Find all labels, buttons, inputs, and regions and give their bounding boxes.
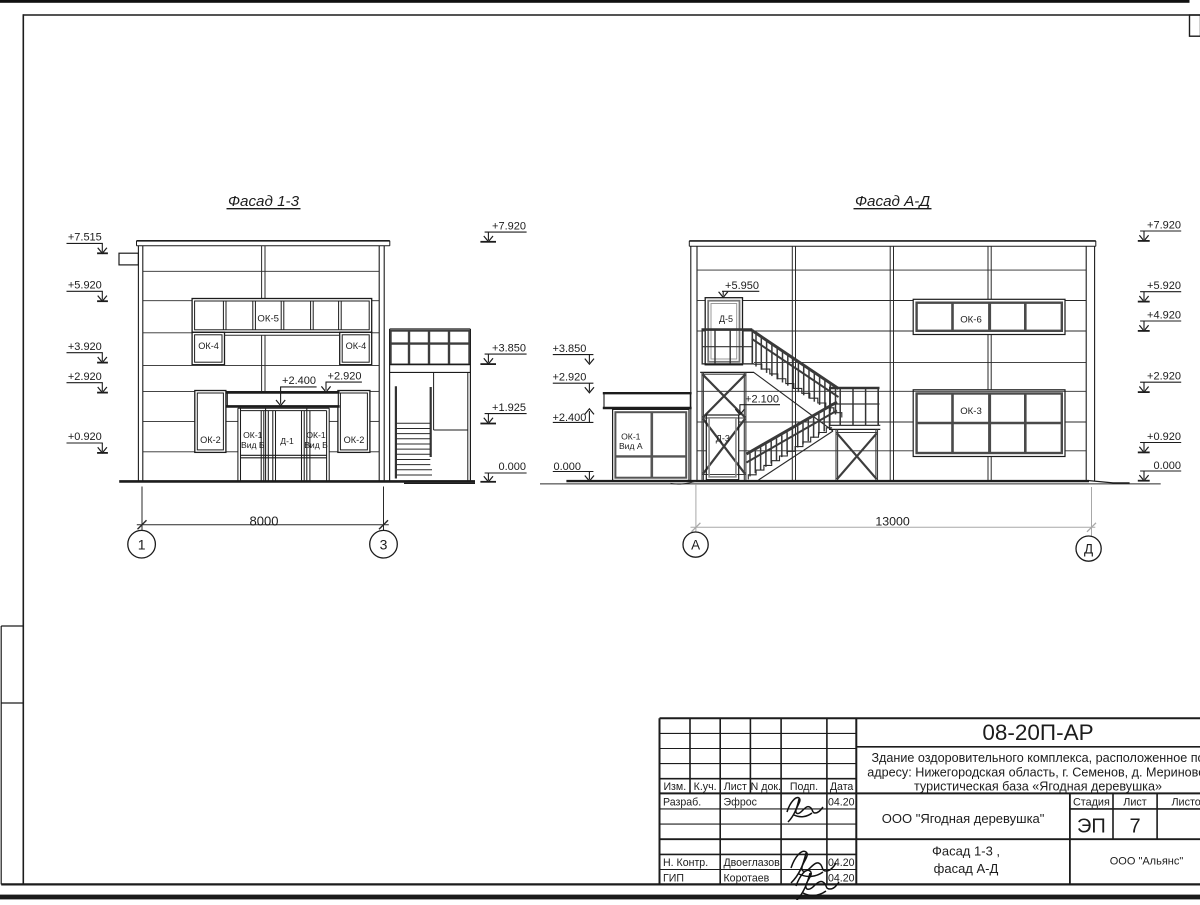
svg-text:Вид А: Вид А bbox=[619, 441, 643, 451]
svg-text:+3.850: +3.850 bbox=[552, 343, 586, 355]
svg-text:Лист: Лист bbox=[1123, 796, 1147, 808]
svg-text:04.20: 04.20 bbox=[828, 797, 855, 809]
svg-text:Д-5: Д-5 bbox=[719, 314, 733, 324]
svg-text:Стадия: Стадия bbox=[1073, 796, 1110, 808]
svg-text:Разраб.: Разраб. bbox=[663, 797, 701, 809]
svg-text:3: 3 bbox=[380, 536, 388, 552]
svg-text:+0.920: +0.920 bbox=[1147, 431, 1181, 443]
svg-text:Фасад 1-3 ,: Фасад 1-3 , bbox=[932, 843, 1000, 858]
svg-text:ОК-2: ОК-2 bbox=[200, 435, 221, 445]
svg-text:ОК-1: ОК-1 bbox=[243, 430, 263, 440]
svg-text:+5.920: +5.920 bbox=[68, 280, 102, 292]
svg-text:+1.925: +1.925 bbox=[492, 402, 526, 414]
svg-text:Н. Контр.: Н. Контр. bbox=[663, 857, 708, 869]
svg-text:+5.920: +5.920 bbox=[1147, 280, 1181, 292]
svg-text:N док.: N док. bbox=[751, 781, 781, 793]
svg-text:ЭП: ЭП bbox=[1077, 816, 1106, 838]
svg-text:Фасад А-Д: Фасад А-Д bbox=[855, 193, 930, 210]
svg-text:Листов: Листов bbox=[1171, 796, 1200, 808]
svg-text:Лист: Лист bbox=[724, 781, 747, 793]
svg-text:13000: 13000 bbox=[875, 514, 910, 528]
svg-text:+5.950: +5.950 bbox=[725, 280, 759, 292]
svg-text:+3.920: +3.920 bbox=[68, 341, 102, 353]
svg-text:ООО "Ягодная деревушка": ООО "Ягодная деревушка" bbox=[882, 811, 1045, 826]
svg-text:А: А bbox=[691, 538, 700, 553]
svg-text:7: 7 bbox=[1129, 816, 1140, 838]
svg-text:ОК-1: ОК-1 bbox=[621, 431, 641, 441]
svg-text:+2.920: +2.920 bbox=[68, 371, 102, 383]
svg-text:ОК-6: ОК-6 bbox=[960, 314, 982, 325]
svg-text:Подп.: Подп. bbox=[790, 781, 818, 793]
svg-text:8000: 8000 bbox=[250, 514, 279, 529]
svg-text:Эфрос: Эфрос bbox=[724, 797, 758, 809]
svg-text:+7.920: +7.920 bbox=[1147, 219, 1181, 231]
svg-text:ОК-1: ОК-1 bbox=[306, 430, 326, 440]
svg-text:ОК-2: ОК-2 bbox=[344, 435, 365, 445]
svg-text:08-20П-АР: 08-20П-АР bbox=[982, 720, 1093, 745]
svg-text:Коротаев: Коротаев bbox=[724, 872, 770, 884]
svg-text:+7.515: +7.515 bbox=[68, 232, 102, 244]
svg-text:Д-3: Д-3 bbox=[716, 433, 730, 443]
svg-text:К.уч.: К.уч. bbox=[694, 781, 717, 793]
svg-text:ГИП: ГИП bbox=[663, 872, 684, 884]
svg-text:+0.920: +0.920 bbox=[68, 431, 102, 443]
svg-text:Фасад 1-3: Фасад 1-3 bbox=[228, 193, 300, 210]
svg-text:адресу: Нижегородская область,: адресу: Нижегородская область, г. Семено… bbox=[867, 766, 1200, 780]
svg-text:Вид Б: Вид Б bbox=[241, 440, 265, 450]
svg-text:+2.400: +2.400 bbox=[282, 375, 316, 387]
svg-text:+2.920: +2.920 bbox=[328, 371, 362, 383]
svg-text:04.20: 04.20 bbox=[828, 872, 855, 884]
svg-text:0.000: 0.000 bbox=[498, 461, 526, 473]
svg-text:Изм.: Изм. bbox=[663, 781, 686, 793]
svg-text:+3.850: +3.850 bbox=[492, 342, 526, 354]
svg-text:+2.100: +2.100 bbox=[745, 393, 779, 405]
svg-text:ОК-4: ОК-4 bbox=[198, 341, 219, 351]
svg-text:ООО "Альянс": ООО "Альянс" bbox=[1110, 855, 1184, 867]
svg-text:Двоеглазов: Двоеглазов bbox=[724, 857, 781, 869]
svg-text:Дата: Дата bbox=[830, 781, 854, 793]
svg-text:+2.920: +2.920 bbox=[552, 372, 586, 384]
svg-text:ОК-4: ОК-4 bbox=[346, 341, 367, 351]
svg-text:Вид Б: Вид Б bbox=[304, 440, 328, 450]
svg-text:Д-1: Д-1 bbox=[280, 436, 294, 446]
svg-text:фасад А-Д: фасад А-Д bbox=[934, 861, 999, 876]
svg-text:1: 1 bbox=[138, 536, 146, 552]
svg-text:0.000: 0.000 bbox=[1153, 460, 1181, 472]
svg-text:Здание оздоровительного компле: Здание оздоровительного комплекса, распо… bbox=[871, 751, 1200, 765]
svg-text:ОК-5: ОК-5 bbox=[257, 313, 279, 324]
svg-text:туристическая база «Ягодная де: туристическая база «Ягодная деревушка» bbox=[914, 780, 1162, 794]
svg-text:+4.920: +4.920 bbox=[1147, 309, 1181, 321]
svg-text:Д: Д bbox=[1084, 542, 1093, 557]
svg-text:+7.920: +7.920 bbox=[492, 220, 526, 232]
svg-text:+2.920: +2.920 bbox=[1147, 371, 1181, 383]
svg-text:ОК-3: ОК-3 bbox=[960, 406, 982, 417]
